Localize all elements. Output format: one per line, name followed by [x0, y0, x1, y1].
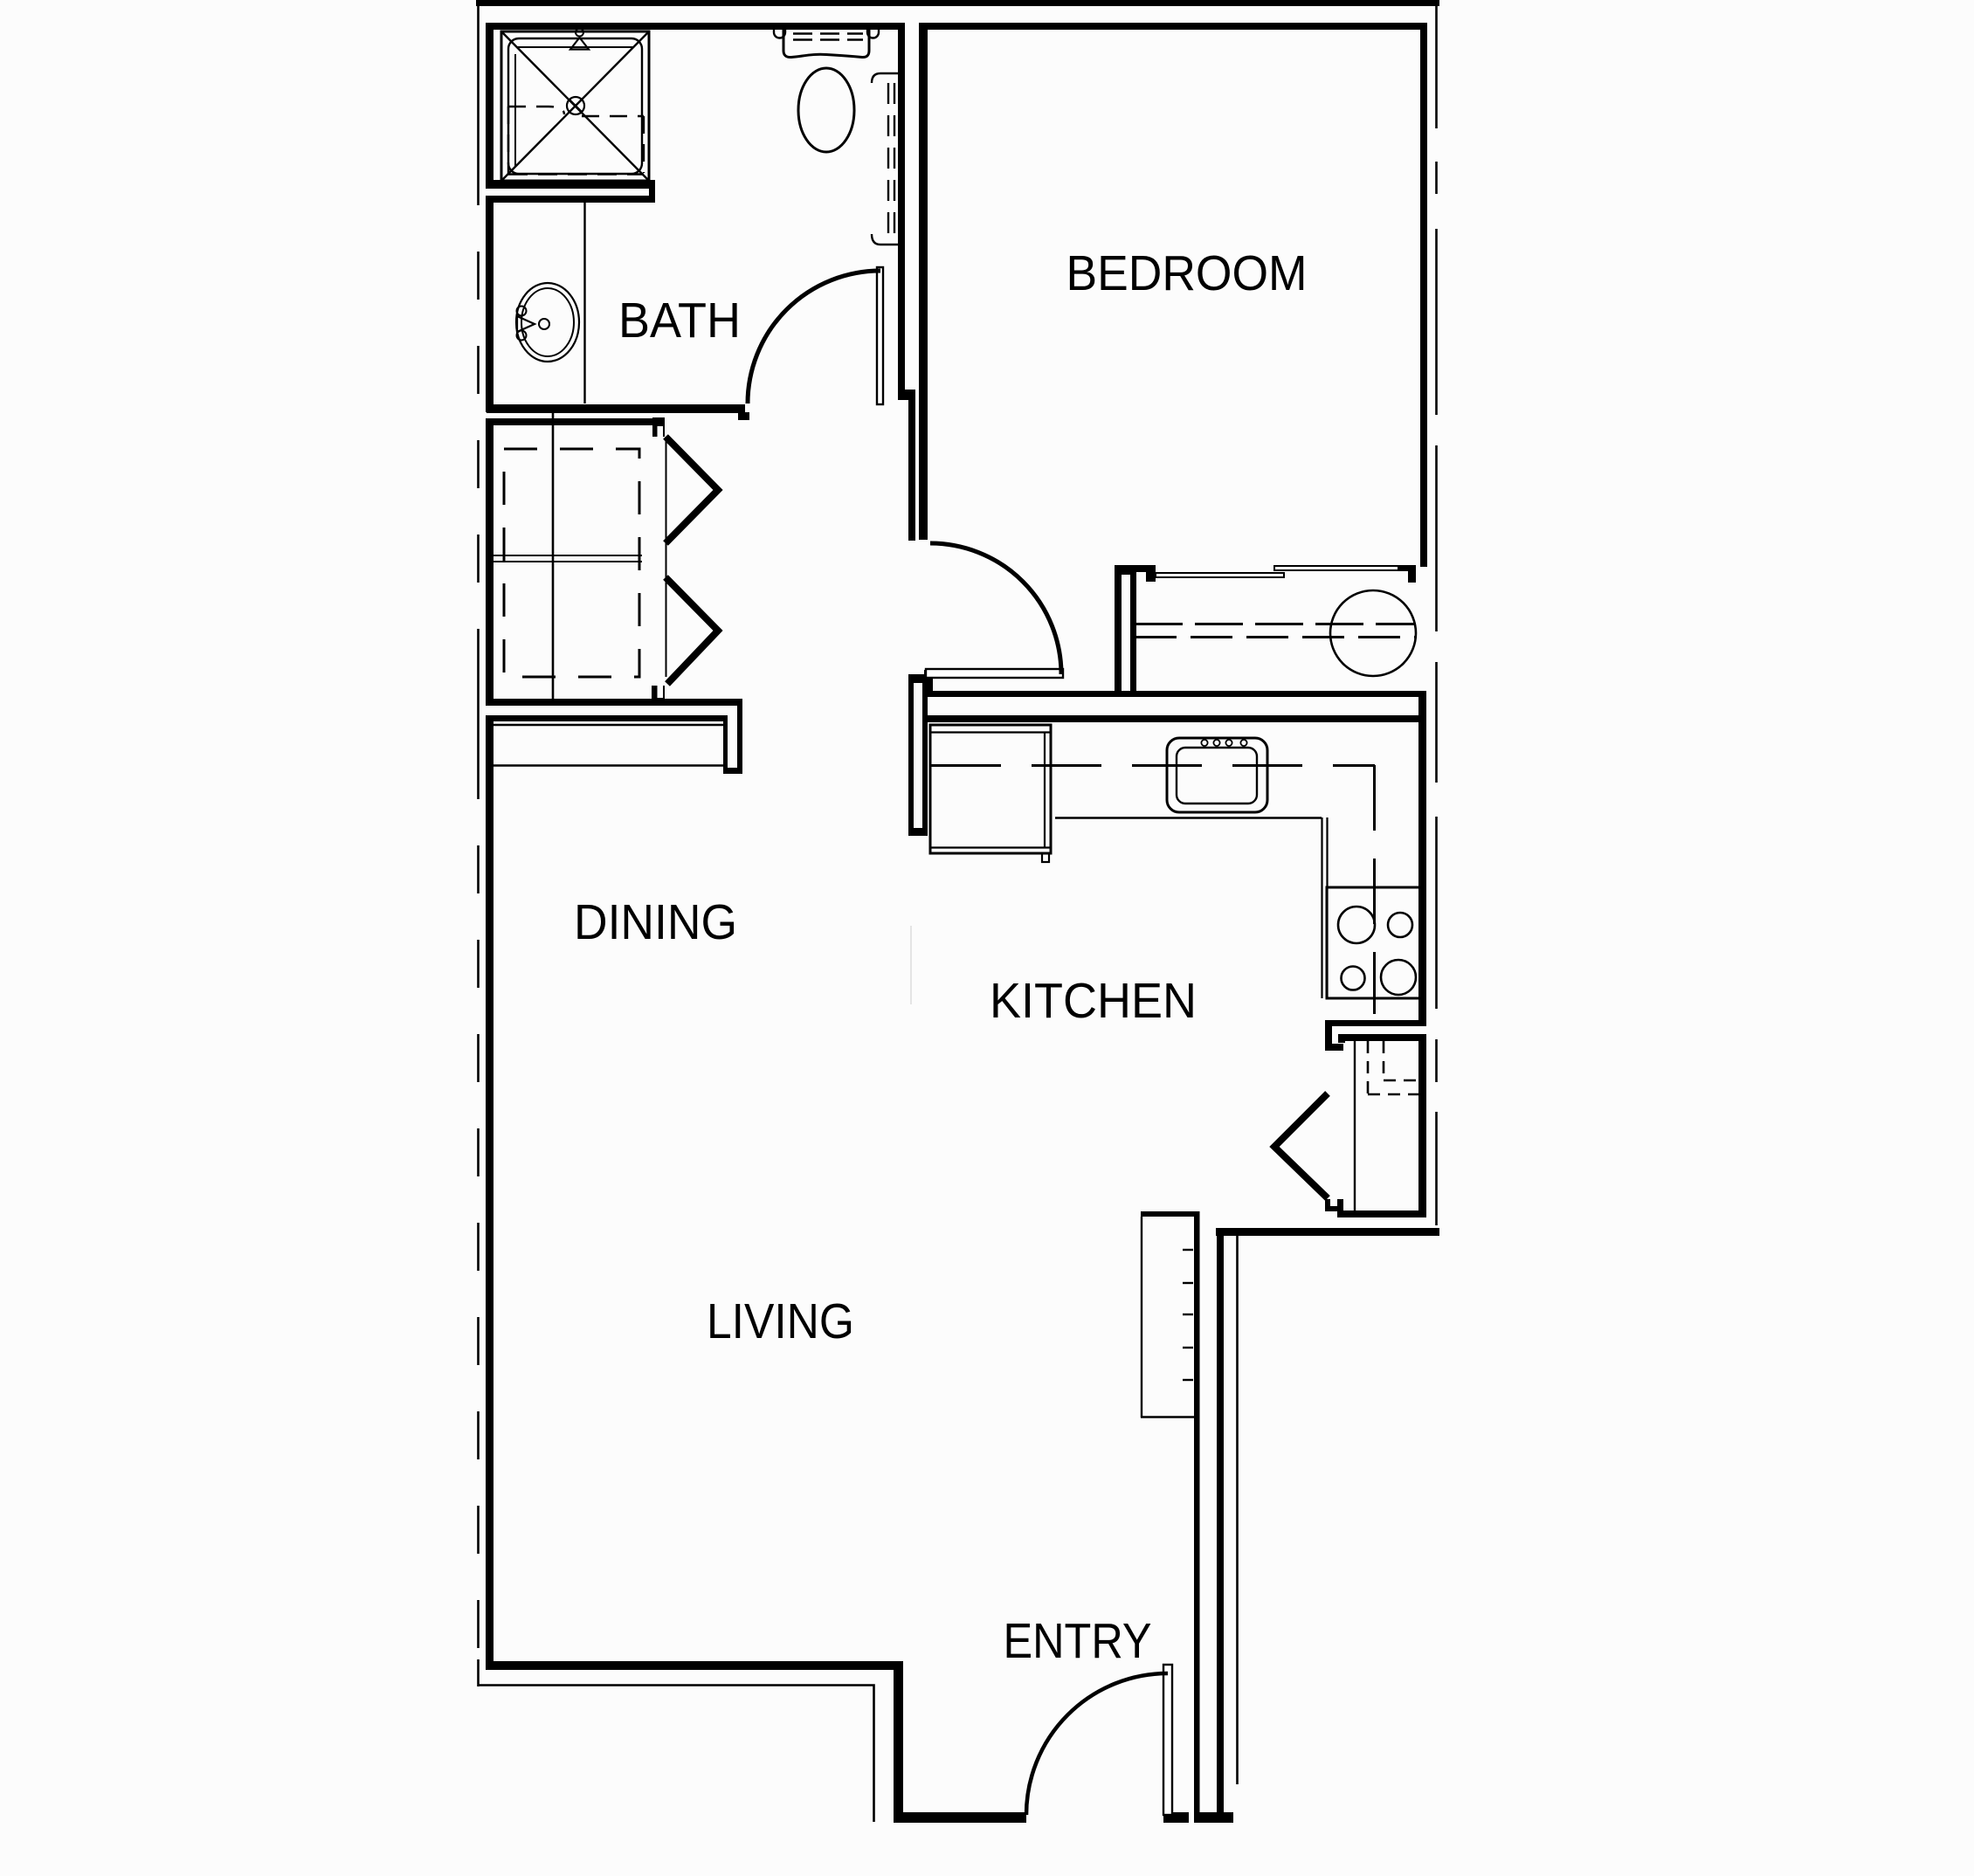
- svg-text:LIVING: LIVING: [707, 1293, 854, 1349]
- svg-text:ENTRY: ENTRY: [1004, 1613, 1152, 1669]
- svg-text:BATH: BATH: [618, 293, 741, 348]
- svg-text:DINING: DINING: [574, 894, 737, 950]
- svg-text:BEDROOM: BEDROOM: [1066, 245, 1308, 301]
- svg-text:KITCHEN: KITCHEN: [990, 973, 1197, 1029]
